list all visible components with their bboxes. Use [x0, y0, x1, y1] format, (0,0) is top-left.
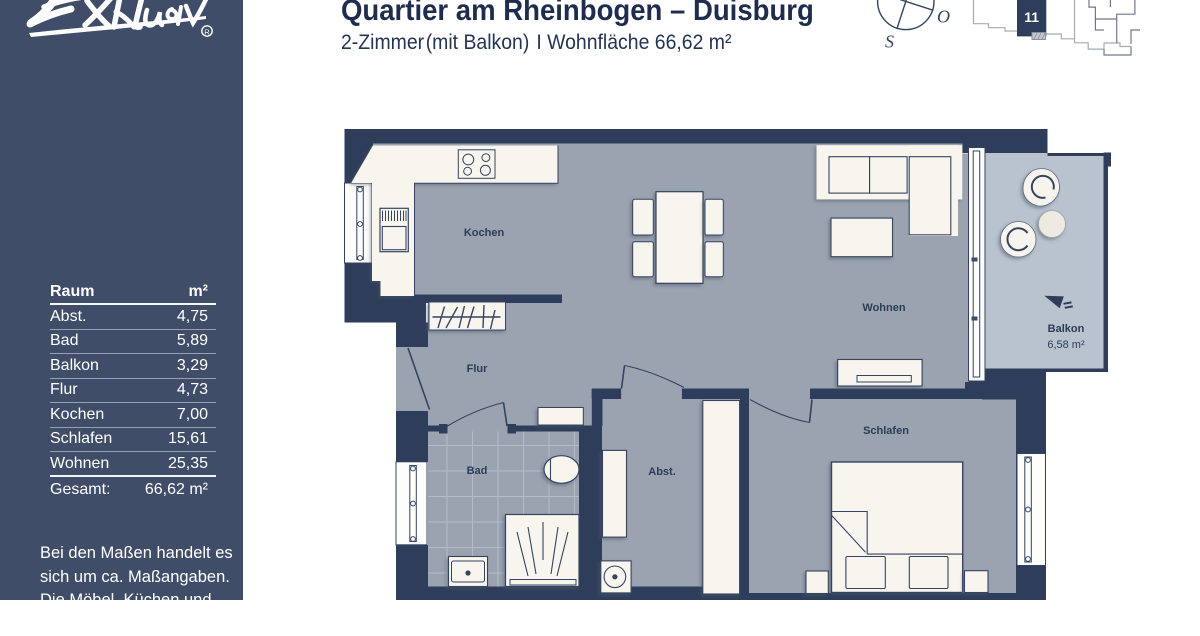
svg-text:Wohnen: Wohnen [862, 302, 905, 314]
svg-text:Kochen: Kochen [464, 227, 505, 239]
svg-text:11: 11 [1024, 9, 1039, 25]
svg-text:Bad: Bad [467, 465, 488, 477]
svg-text:Schlafen: Schlafen [863, 425, 909, 437]
svg-text:S: S [885, 32, 894, 52]
svg-text:Abst.: Abst. [648, 466, 676, 478]
svg-text:6,58 m²: 6,58 m² [1047, 339, 1085, 351]
svg-text:Flur: Flur [467, 363, 488, 375]
svg-text:O: O [937, 7, 950, 27]
svg-text:Balkon: Balkon [1048, 323, 1085, 335]
